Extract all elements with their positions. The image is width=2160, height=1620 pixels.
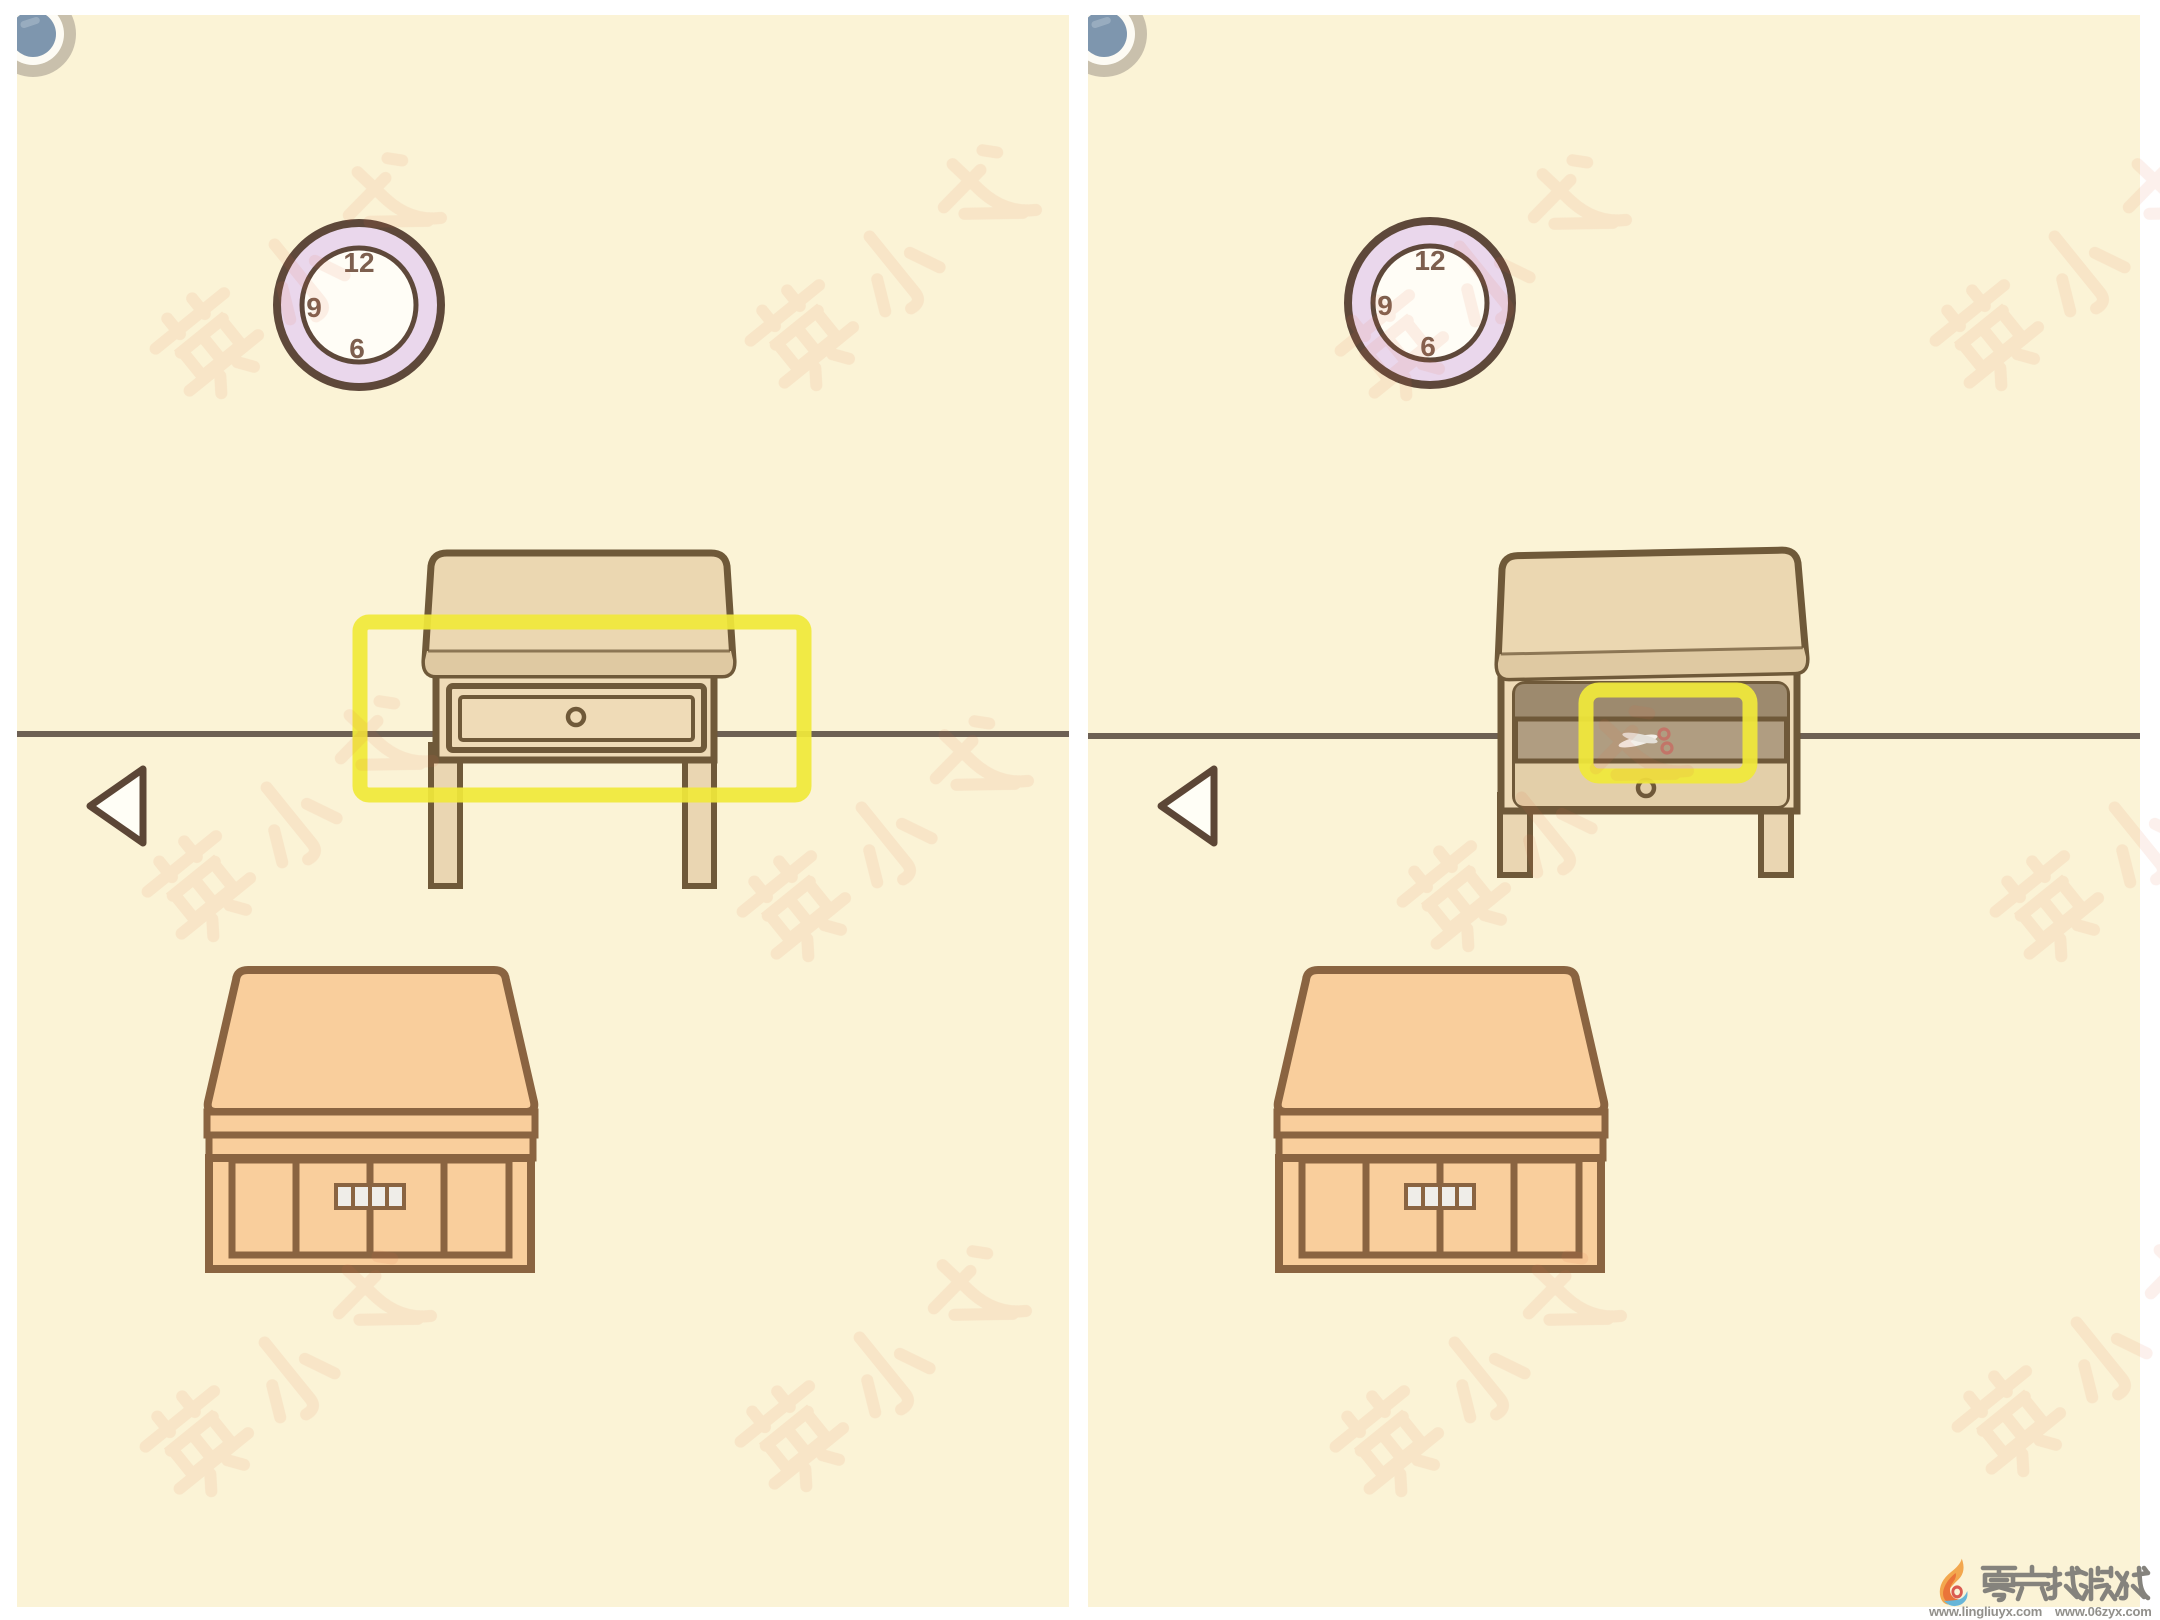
svg-text:www.lingliuyx.com: www.lingliuyx.com <box>1928 1604 2042 1619</box>
svg-text:www.06zyx.com: www.06zyx.com <box>2054 1604 2152 1619</box>
